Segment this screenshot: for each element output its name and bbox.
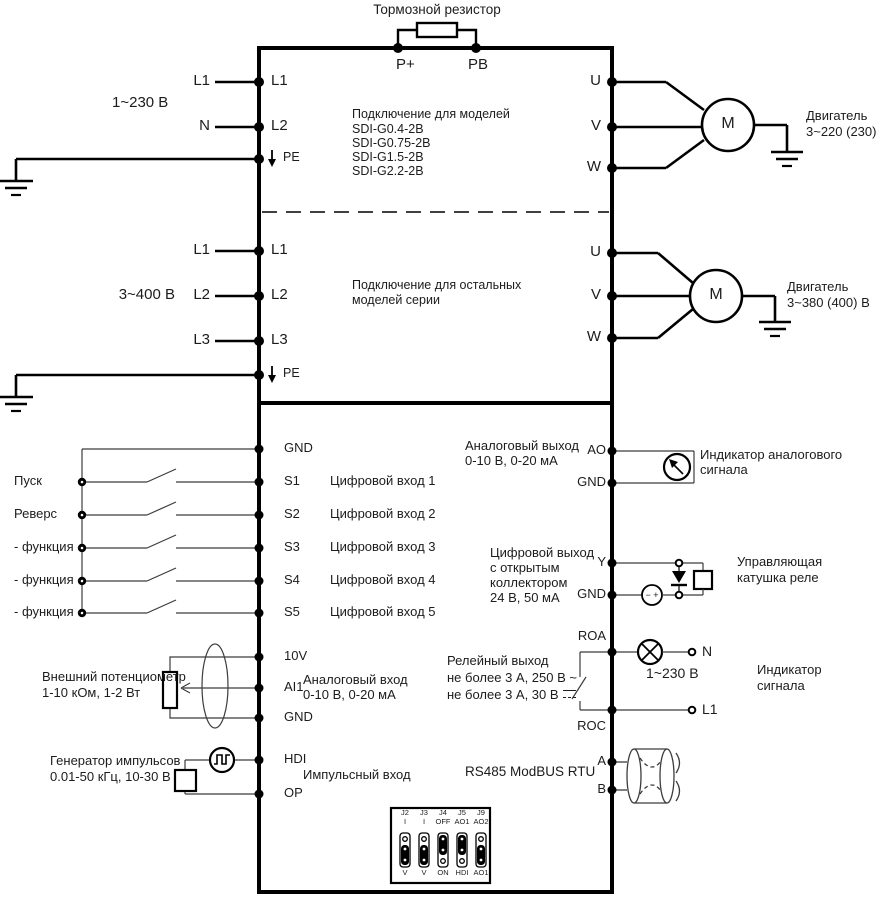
supply-2-wires — [0, 246, 276, 411]
pulse-generator-symbol — [175, 748, 264, 799]
analog-input-label-line1: Аналоговый вход — [303, 673, 408, 687]
wiring-diagram: Тормозной резистор P+ PB L1 1~230 В N L1… — [0, 0, 881, 900]
motor-2-caption-line1: Двигатель — [787, 280, 848, 294]
potentiometer-symbol — [163, 644, 264, 728]
jumper-j9-bottom: AO1 — [468, 869, 494, 877]
note-s2-line2: моделей серии — [352, 294, 440, 308]
digital-input-5-label: Цифровой вход 5 — [330, 605, 436, 619]
terminal-u-s1: U — [571, 73, 601, 90]
motor-1-symbol — [607, 77, 803, 173]
potentiometer-label-line2: 1-10 кОм, 1-2 Вт — [42, 686, 140, 700]
terminal-l3-s2: L3 — [271, 332, 288, 349]
wire-label-n: N — [160, 118, 210, 135]
terminal-s5: S5 — [284, 605, 300, 619]
terminal-b: B — [546, 782, 606, 796]
relay-output-label-line3-text: не более 3 А, 30 В — [447, 687, 559, 702]
relay-voltage-label: 1~230 В — [646, 666, 699, 681]
terminal-roa: ROA — [546, 629, 606, 643]
terminal-l2-s2: L2 — [271, 287, 288, 304]
terminal-v-s2: V — [571, 287, 601, 304]
analog-input-label-line2: 0-10 В, 0-20 мА — [303, 688, 396, 702]
terminal-s2: S2 — [284, 507, 300, 521]
terminal-w-s2: W — [571, 329, 601, 346]
digital-input-3-label: Цифровой вход 3 — [330, 540, 436, 554]
terminal-a: A — [546, 754, 606, 768]
terminal-s4: S4 — [284, 573, 300, 587]
terminal-p-plus: P+ — [396, 57, 415, 74]
wire-label-l1-s2: L1 — [160, 242, 210, 259]
analog-output-label-line2: 0-10 В, 0-20 мА — [465, 454, 558, 468]
terminal-op: OP — [284, 786, 303, 800]
pulse-generator-label-line2: 0.01-50 кГц, 10-30 В — [50, 770, 171, 784]
wire-label-l3-s2: L3 — [160, 332, 210, 349]
terminal-s3: S3 — [284, 540, 300, 554]
jumper-j9-name: J9 — [468, 809, 494, 817]
relay-coil-label-line2: катушка реле — [737, 571, 819, 585]
signal-indicator-label-line2: сигнала — [757, 679, 805, 693]
motor-1-label: M — [713, 115, 743, 133]
relay-contact-symbol — [572, 652, 612, 710]
relay-output-label-line3: не более 3 А, 30 В — [447, 688, 576, 702]
terminal-pe-s2: PE — [283, 367, 300, 381]
rs485-cable-symbol — [608, 749, 680, 803]
motor-2-caption-line2: 3~380 (400) В — [787, 296, 870, 310]
terminal-gnd-ao: GND — [546, 475, 606, 489]
relay-output-label-line2: не более 3 А, 250 В ~ — [447, 671, 577, 685]
jumper-j9-top: AO2 — [468, 818, 494, 826]
potentiometer-label-line1: Внешний потенциометр — [42, 670, 186, 684]
relay-output-label-line1: Релейный выход — [447, 654, 549, 668]
terminal-u-s2: U — [571, 244, 601, 261]
note-s1-line3: SDI-G0.75-2B — [352, 137, 431, 151]
wire-label-l1-relay: L1 — [702, 702, 718, 717]
note-s1-line1: Подключение для моделей — [352, 108, 510, 122]
terminal-s1: S1 — [284, 474, 300, 488]
pulse-generator-label-line1: Генератор импульсов — [50, 754, 180, 768]
motor-2-symbol — [607, 248, 791, 343]
digital-input-2-label: Цифровой вход 2 — [330, 507, 436, 521]
note-s2-line1: Подключение для остальных — [352, 279, 521, 293]
input-run-label: Пуск — [14, 474, 42, 488]
digital-input-1-label: Цифровой вход 1 — [330, 474, 436, 488]
signal-indicator-label-line1: Индикатор — [757, 663, 822, 677]
motor-2-label: M — [701, 286, 731, 304]
digital-input-4-label: Цифровой вход 4 — [330, 573, 436, 587]
wire-label-l2-s2: L2 — [160, 287, 210, 304]
motor-1-caption-line1: Двигатель — [806, 109, 867, 123]
terminal-hdi: HDI — [284, 752, 306, 766]
analog-indicator-label-line1: Индикатор аналогового — [700, 448, 842, 462]
analog-indicator-symbol — [608, 447, 695, 488]
wire-label-n-relay: N — [702, 644, 712, 659]
pulse-input-label: Импульсный вход — [303, 768, 411, 782]
dc-source-label: − + — [643, 591, 661, 601]
power-box-outline — [259, 48, 612, 403]
terminal-ai1: AI1 — [284, 680, 304, 694]
note-s1-line2: SDI-G0.4-2B — [352, 123, 424, 137]
input-func-label-3: - функция - — [14, 605, 82, 619]
note-s1-line5: SDI-G2.2-2B — [352, 165, 424, 179]
relay-coil-label-line1: Управляющая — [737, 555, 822, 569]
terminal-pb: PB — [468, 57, 488, 74]
terminal-l1-s2: L1 — [271, 242, 288, 259]
input-reverse-label: Реверс — [14, 507, 57, 521]
terminal-y: Y — [546, 555, 606, 569]
dc-symbol-icon — [563, 690, 576, 698]
terminal-l2-s1: L2 — [271, 118, 288, 135]
motor-1-caption-line2: 3~220 (230) В — [806, 125, 881, 139]
input-func-label-2: - функция - — [14, 573, 82, 587]
note-s1-line4: SDI-G1.5-2B — [352, 151, 424, 165]
terminal-gnd-ai: GND — [284, 710, 313, 724]
terminal-gnd-top: GND — [284, 441, 313, 455]
terminal-10v: 10V — [284, 649, 307, 663]
input-func-label-1: - функция - — [14, 540, 82, 554]
wire-label-l1-s1: L1 — [160, 73, 210, 90]
terminal-ao: AO — [546, 443, 606, 457]
analog-indicator-label-line2: сигнала — [700, 463, 748, 477]
terminal-pe-s1: PE — [283, 151, 300, 165]
terminal-roc: ROC — [546, 719, 606, 733]
digital-input-switches — [78, 445, 264, 618]
brake-resistor-label: Тормозной резистор — [337, 3, 537, 18]
terminal-v-s1: V — [571, 118, 601, 135]
supply-voltage-1: 1~230 В — [112, 95, 168, 112]
terminal-l1-s1: L1 — [271, 73, 288, 90]
terminal-w-s1: W — [571, 159, 601, 176]
terminal-gnd-y: GND — [546, 587, 606, 601]
